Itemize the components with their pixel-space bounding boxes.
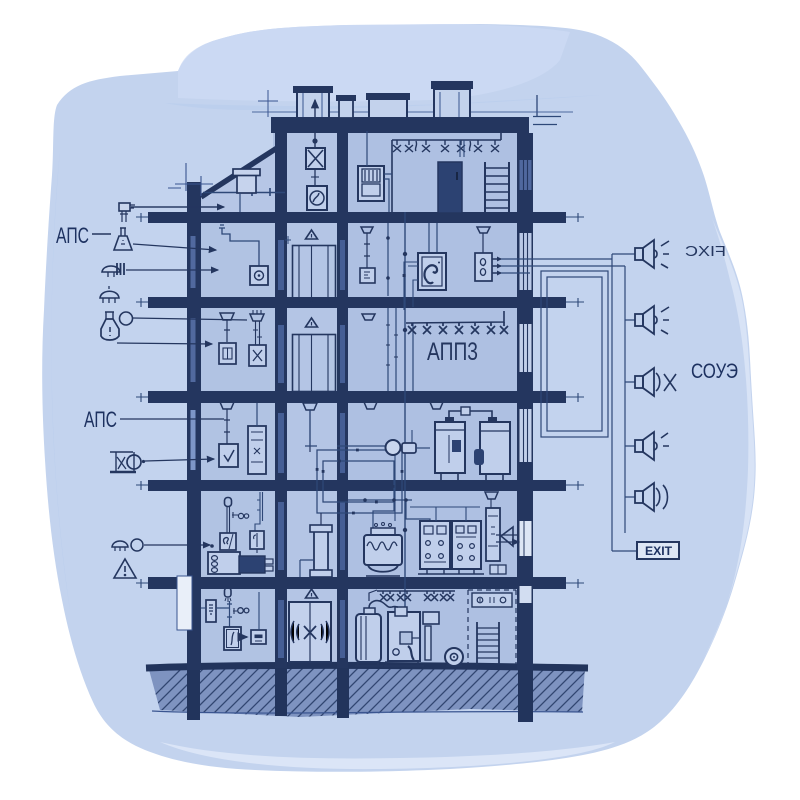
svg-text:СОУЭ: СОУЭ xyxy=(691,360,738,383)
svg-text:EXIT: EXIT xyxy=(645,544,673,558)
svg-text:FIXC: FIXC xyxy=(685,243,726,260)
svg-text:АПП3: АПП3 xyxy=(427,338,478,366)
svg-text:АПС: АПС xyxy=(84,407,117,432)
svg-text:АПС: АПС xyxy=(56,223,89,248)
